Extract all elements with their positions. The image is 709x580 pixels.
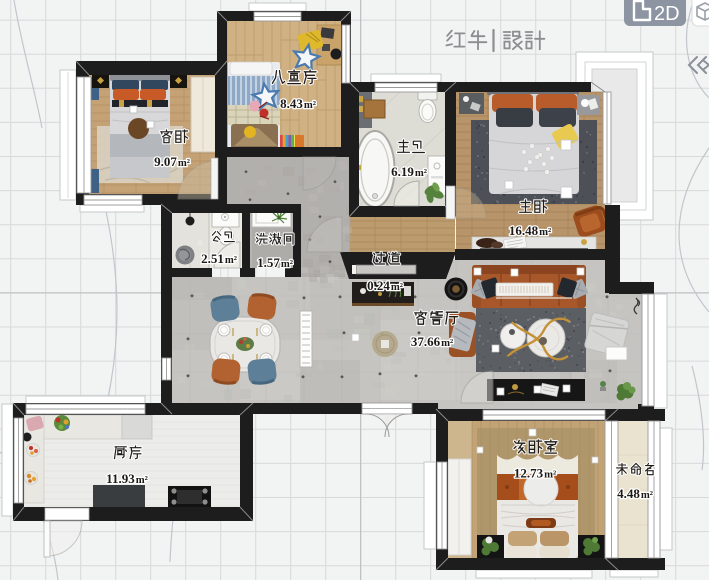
svg-text:1.57m²: 1.57m² — [257, 255, 293, 270]
svg-text:8.43m²: 8.43m² — [280, 96, 316, 111]
svg-text:2.51m²: 2.51m² — [201, 251, 237, 266]
svg-text:11.93m²: 11.93m² — [106, 471, 148, 486]
svg-text:37.66m²: 37.66m² — [411, 334, 453, 349]
svg-text:4.48m²: 4.48m² — [617, 486, 653, 501]
svg-text:2D: 2D — [654, 3, 680, 25]
svg-text:6.19m²: 6.19m² — [391, 164, 427, 179]
svg-text:16.48m²: 16.48m² — [509, 223, 551, 238]
svg-text:12.73m²: 12.73m² — [514, 466, 556, 481]
svg-text:9.07m²: 9.07m² — [154, 154, 190, 169]
svg-text:0.24m²: 0.24m² — [367, 278, 403, 293]
